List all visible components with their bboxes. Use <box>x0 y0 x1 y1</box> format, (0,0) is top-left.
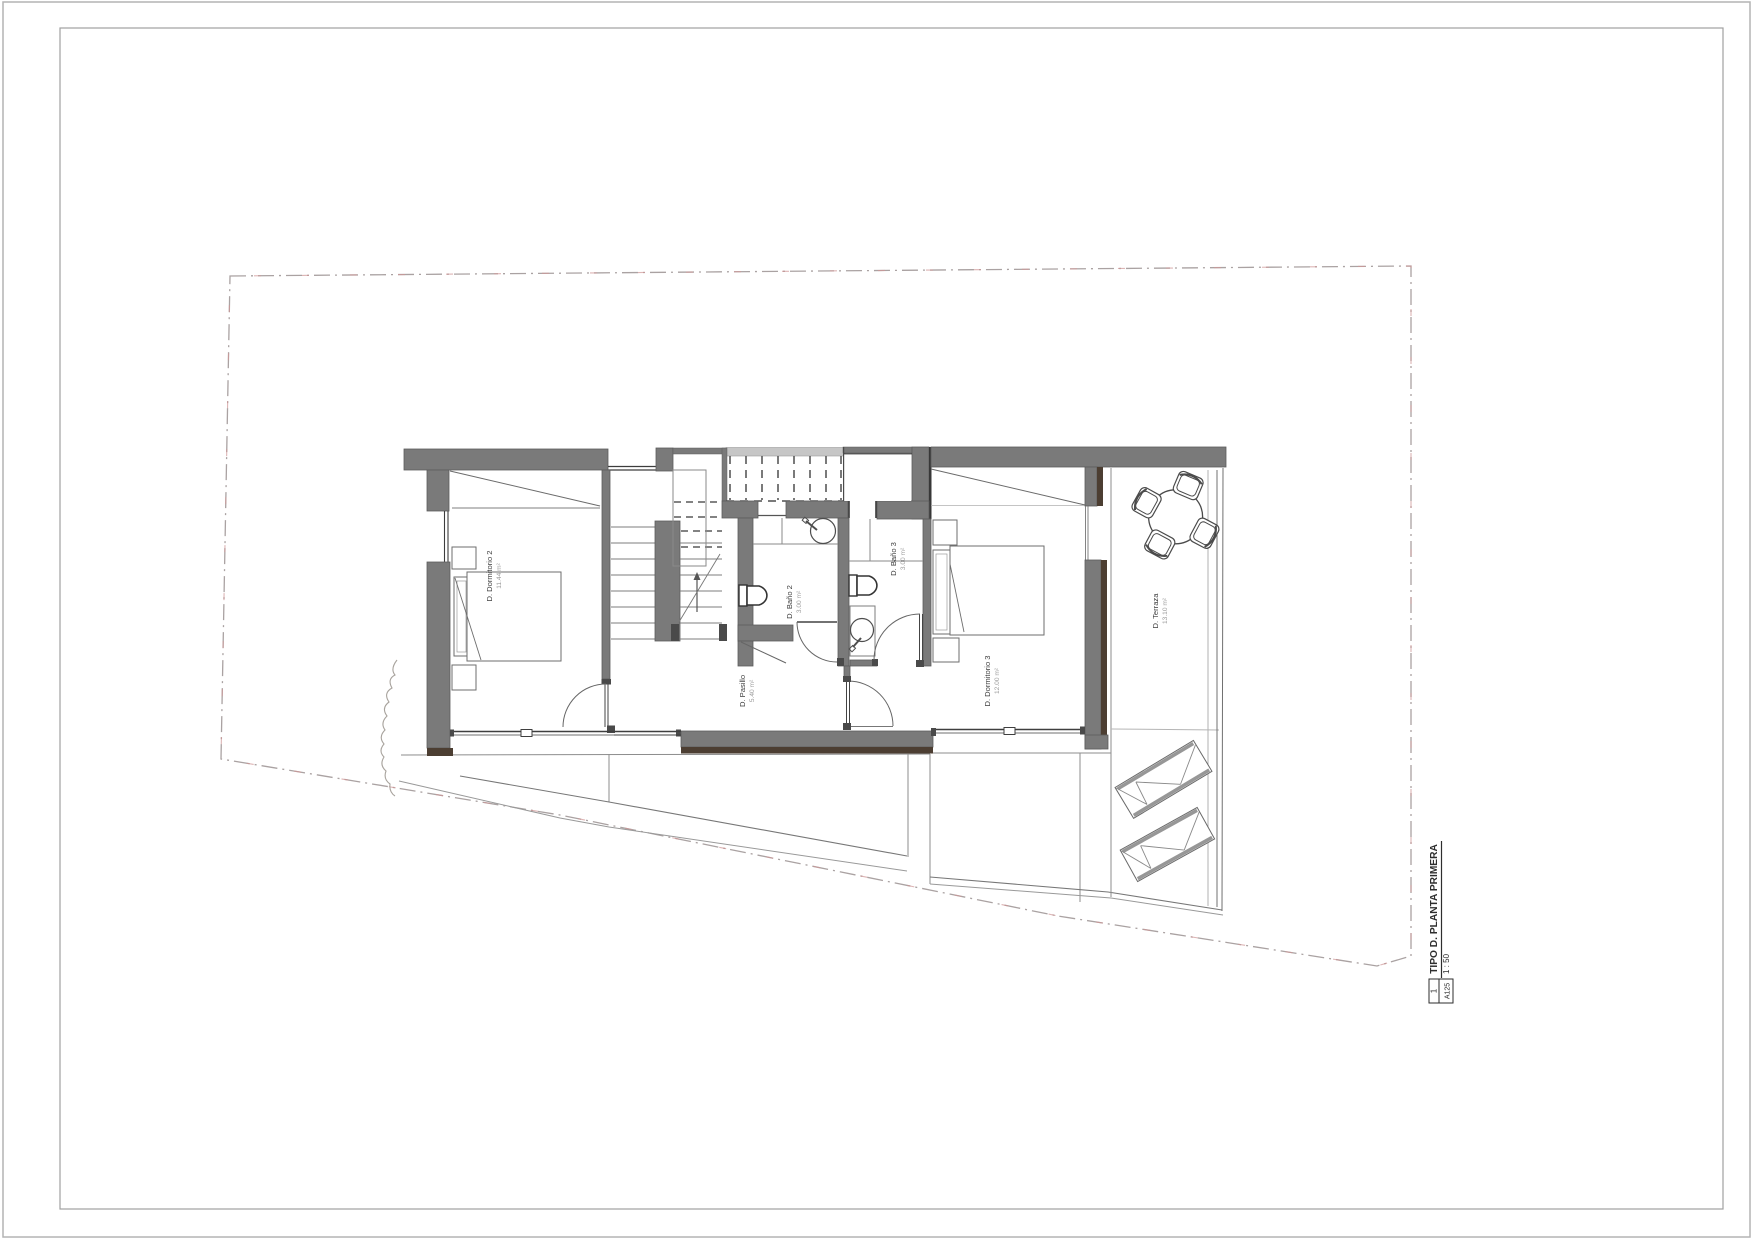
svg-text:D. Baño 2: D. Baño 2 <box>785 585 794 619</box>
svg-text:5.40 m²: 5.40 m² <box>749 679 756 702</box>
svg-text:3.00 m²: 3.00 m² <box>796 590 803 613</box>
svg-text:D. Dormitorio 2: D. Dormitorio 2 <box>485 550 494 601</box>
svg-text:3.00 m²: 3.00 m² <box>900 547 907 570</box>
svg-text:TIPO D. PLANTA PRIMERA: TIPO D. PLANTA PRIMERA <box>1429 844 1440 974</box>
svg-text:A125: A125 <box>1445 983 1452 999</box>
svg-text:D. Baño 3: D. Baño 3 <box>889 542 898 576</box>
svg-text:12.00 m²: 12.00 m² <box>994 667 1001 694</box>
svg-text:D. Pasillo: D. Pasillo <box>738 675 747 707</box>
svg-text:13.10 m²: 13.10 m² <box>1162 597 1169 624</box>
svg-text:D. Terraza: D. Terraza <box>1151 593 1160 629</box>
svg-text:11.44 m²: 11.44 m² <box>496 562 503 588</box>
svg-text:1 : 50: 1 : 50 <box>1442 953 1451 974</box>
svg-text:1: 1 <box>1430 988 1439 993</box>
svg-text:D. Dormitorio 3: D. Dormitorio 3 <box>983 655 992 706</box>
